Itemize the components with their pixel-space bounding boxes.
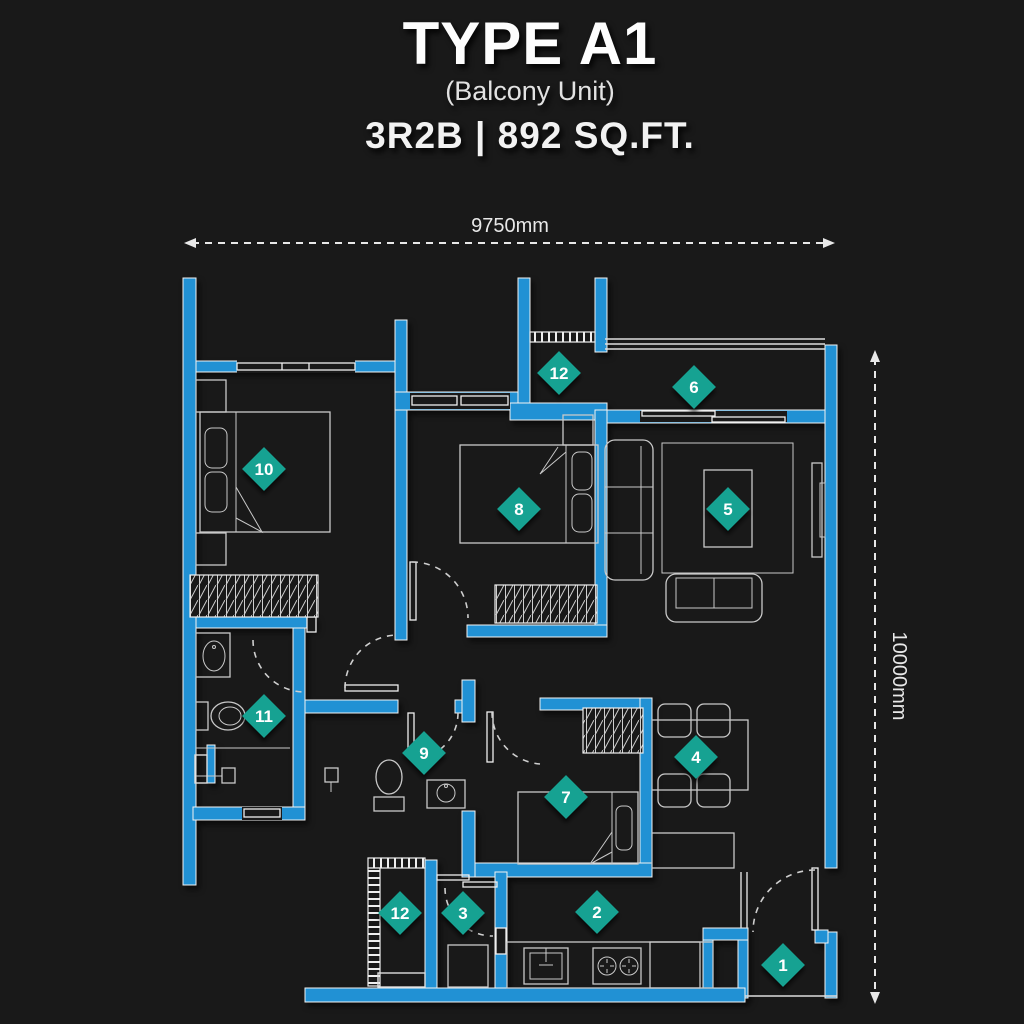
arrow-left-icon	[184, 238, 196, 248]
room-marker-6: 6	[672, 365, 716, 409]
room-marker-7: 7	[544, 775, 588, 819]
wall-ledge-bottom-right	[425, 860, 437, 988]
shower-niche	[195, 755, 207, 783]
marker-number: 6	[689, 378, 698, 397]
toilet-bowl	[211, 702, 245, 730]
kitchen-furniture	[448, 942, 713, 988]
width-dimension-label: 9750mm	[471, 215, 549, 237]
washing-machine	[448, 945, 488, 987]
wall-ledge-top-left	[518, 278, 530, 420]
marker-number: 1	[778, 956, 787, 975]
ac-ledge-top-grille	[530, 332, 595, 342]
marker-number: 12	[550, 364, 569, 383]
marker-number: 8	[514, 500, 523, 519]
tap-icon	[445, 785, 448, 788]
door-leaf-hall	[345, 685, 398, 691]
nightstand	[196, 533, 226, 565]
wall-bedroom2-bottom	[467, 625, 607, 637]
tap-icon	[213, 646, 216, 649]
wall-foyer-left	[703, 940, 713, 995]
room-marker-11: 11	[242, 694, 286, 738]
room-marker-3: 3	[441, 891, 485, 935]
wall-ledge-top-right	[595, 278, 607, 352]
wardrobe	[190, 575, 318, 617]
door-leaf-bedroom2	[410, 562, 416, 620]
wall-entry-stub	[815, 930, 828, 943]
ac-ledge-bottom-grille-top	[368, 858, 425, 868]
unit-spec: 3R2B | 892 SQ.FT.	[365, 115, 695, 157]
wall-bath-divider	[293, 628, 305, 820]
dining-furniture	[652, 704, 748, 868]
blanket-fold	[590, 832, 612, 864]
kitchen-counter	[507, 942, 713, 988]
windows	[237, 339, 837, 996]
faucet-icon	[539, 948, 553, 965]
floor-plan-page: TYPE A1 (Balcony Unit) 3R2B | 892 SQ.FT.…	[0, 0, 1024, 1024]
pillow	[205, 472, 227, 512]
blanket-fold	[236, 487, 262, 532]
wall-bottom	[305, 988, 745, 1002]
wall-bedroom-divider	[395, 320, 407, 640]
door-arc-entry	[753, 870, 815, 932]
sideboard-cabinet	[652, 833, 734, 868]
room-markers: 12345678910111212	[242, 351, 805, 987]
blanket-fold	[540, 447, 566, 474]
window-bedroom1-bg	[237, 360, 355, 373]
burner-cross	[622, 959, 636, 973]
toilet-bowl	[376, 760, 402, 794]
fridge	[650, 942, 700, 988]
bath2-fixtures	[325, 760, 465, 811]
wall-bedroom3-left-upper	[462, 680, 475, 722]
walls	[183, 278, 837, 1002]
door-leaf-bedroom3	[487, 712, 493, 762]
height-dimension: 10000mm	[870, 350, 910, 1004]
marker-number: 12	[391, 904, 410, 923]
marker-number: 5	[723, 500, 732, 519]
window-yard	[496, 928, 506, 954]
toilet-tank	[196, 702, 208, 730]
marker-number: 9	[419, 744, 428, 763]
wardrobe	[583, 708, 643, 753]
wall-nook-stub	[207, 745, 215, 783]
ac-ledge-bottom-grille-side	[368, 868, 380, 986]
room-marker-8: 8	[497, 487, 541, 531]
arrow-right-icon	[823, 238, 835, 248]
wall-bedroom3-left-lower	[462, 811, 475, 877]
floor-plan-canvas: TYPE A1 (Balcony Unit) 3R2B | 892 SQ.FT.…	[0, 0, 1024, 1024]
wall-foyer-top	[703, 928, 748, 940]
marker-number: 7	[561, 788, 570, 807]
marker-number: 11	[255, 707, 273, 726]
room-marker-5: 5	[706, 487, 750, 531]
burner-cross	[600, 959, 614, 973]
toilet-seat	[219, 707, 241, 725]
wardrobe	[495, 585, 597, 623]
arrow-up-icon	[870, 350, 880, 362]
basin	[437, 784, 455, 802]
page-subtitle: (Balcony Unit)	[445, 76, 615, 106]
marker-number: 3	[458, 904, 467, 923]
width-dimension: 9750mm	[184, 215, 835, 248]
bedroom3-furniture	[518, 708, 643, 864]
sofa	[605, 440, 653, 580]
ac-unit-base	[378, 973, 425, 987]
shower-head	[222, 768, 235, 783]
room-marker-2: 2	[575, 890, 619, 934]
yard-door-panel	[463, 882, 497, 887]
door-arc-hall	[345, 635, 398, 688]
pillow	[616, 806, 632, 850]
door-frame-bath1	[307, 617, 316, 632]
room-marker-12: 12	[537, 351, 581, 395]
header: TYPE A1 (Balcony Unit) 3R2B | 892 SQ.FT.	[365, 10, 695, 157]
room-marker-1: 1	[761, 943, 805, 987]
nightstand	[196, 380, 226, 412]
living-furniture	[605, 440, 825, 622]
pillow	[205, 428, 227, 468]
wall-bath1-top	[196, 617, 315, 628]
marker-number: 2	[592, 903, 601, 922]
wall-right-upper	[825, 345, 837, 868]
wall-bath2-top-left	[305, 700, 398, 713]
height-dimension-label: 10000mm	[888, 632, 910, 721]
door-arc-bedroom2	[412, 562, 468, 618]
arrow-down-icon	[870, 992, 880, 1004]
marker-number: 4	[691, 748, 701, 767]
room-marker-10: 10	[242, 447, 286, 491]
pillow	[572, 494, 592, 532]
water-heater	[325, 768, 338, 782]
door-arc-bedroom3	[492, 712, 540, 764]
pillow	[572, 452, 592, 490]
bedroom1-furniture	[190, 380, 330, 617]
toilet-tank	[374, 797, 404, 811]
door-leaf-entry	[812, 868, 818, 930]
room-marker-12: 12	[378, 891, 422, 935]
page-title: TYPE A1	[403, 10, 658, 77]
marker-number: 10	[255, 460, 274, 479]
room-marker-4: 4	[674, 735, 718, 779]
